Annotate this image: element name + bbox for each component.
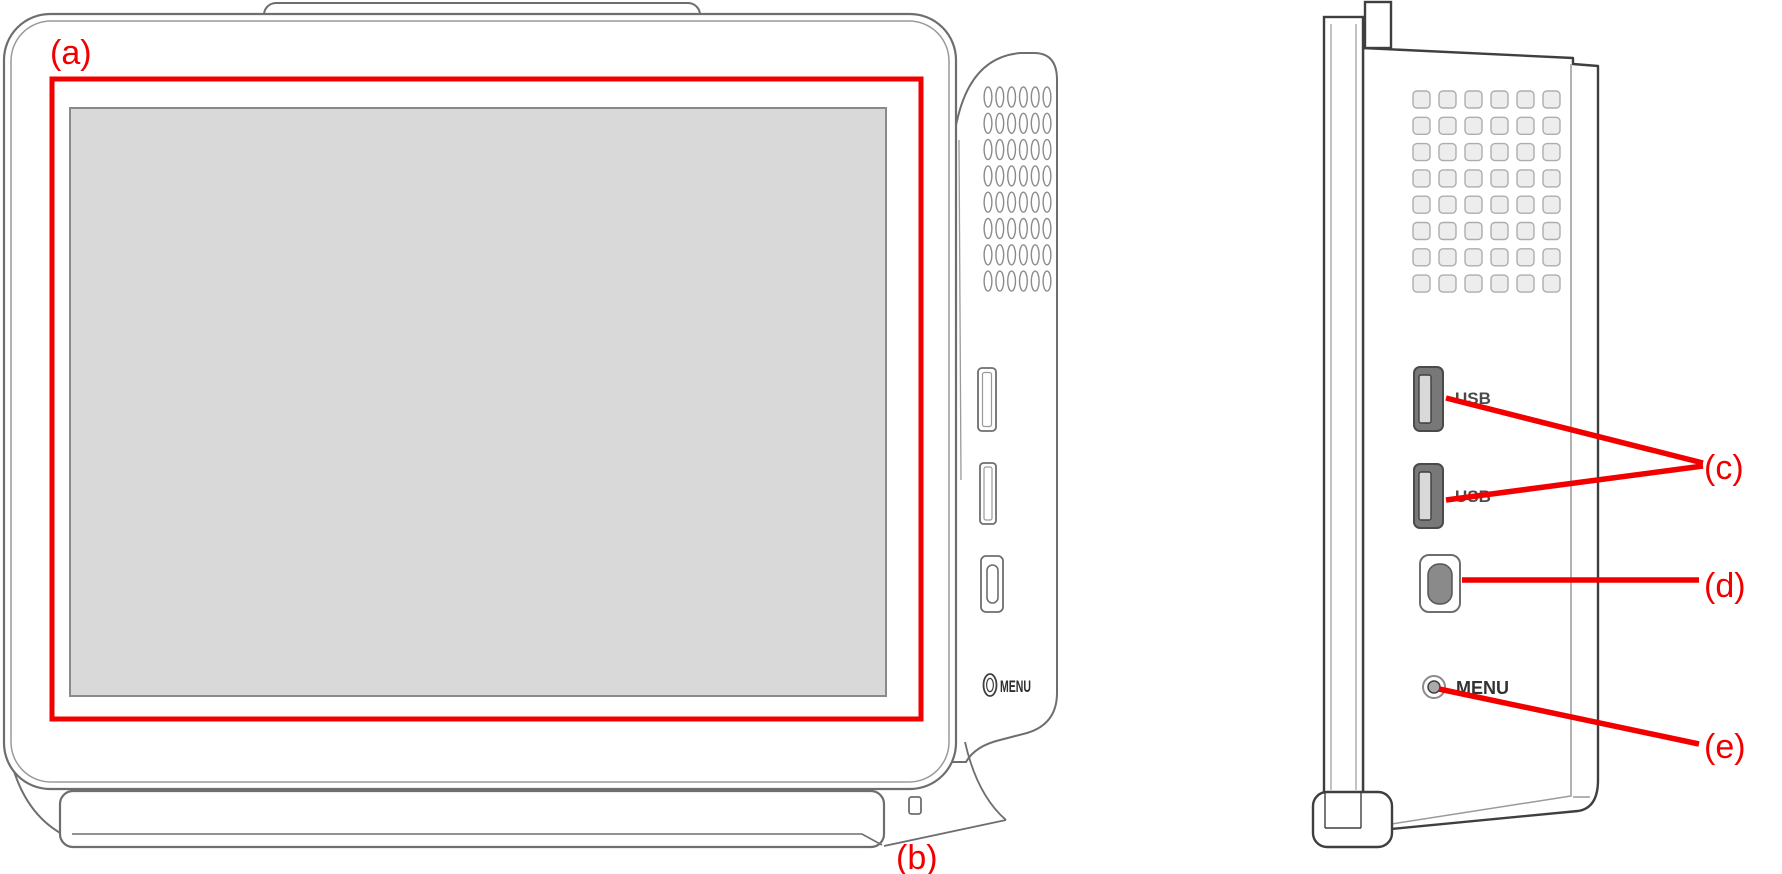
side-mini-port [1420,555,1460,612]
front-menu-button [984,674,997,696]
vent-hole [1043,113,1051,133]
vent-hole [1031,140,1039,160]
vent-hole [984,271,992,291]
vent-hole [1543,275,1560,292]
vent-hole [1020,166,1028,186]
vent-hole [1043,271,1051,291]
vent-hole [1439,275,1456,292]
vent-hole [1465,117,1482,134]
vent-hole [1491,275,1508,292]
front-side-panel [950,53,1057,762]
side-usb-port-top [1414,367,1443,431]
vent-hole [984,87,992,107]
vent-hole [1491,117,1508,134]
vent-hole [1031,166,1039,186]
vent-hole [1031,245,1039,265]
vent-hole [1439,223,1456,240]
vent-hole [1043,192,1051,212]
vent-hole [1517,275,1534,292]
vent-hole [996,245,1004,265]
vent-hole [1413,170,1430,187]
vent-hole [1020,192,1028,212]
vent-hole [996,219,1004,239]
front-menu-button-label: MENU [1000,676,1031,695]
vent-hole [1491,144,1508,161]
vent-hole [1413,223,1430,240]
side-usb-port-bottom [1414,464,1443,528]
vent-hole [1543,144,1560,161]
vent-hole [996,271,1004,291]
vent-hole [1439,91,1456,108]
vent-hole [1020,271,1028,291]
vent-hole [1008,192,1016,212]
front-edge-usb-slot-bottom [980,463,996,524]
vent-hole [1031,219,1039,239]
indicator-window [909,797,921,814]
vent-hole [1543,117,1560,134]
vent-hole [1465,196,1482,213]
vent-hole [1491,91,1508,108]
vent-hole [984,140,992,160]
front-bottom-bar [60,791,884,847]
vent-hole [1465,249,1482,266]
side-bottom-foot [1313,792,1392,847]
vent-hole [1491,170,1508,187]
vent-hole [1517,91,1534,108]
vent-hole [1043,87,1051,107]
vent-hole [1439,249,1456,266]
callout-e-label: (e) [1704,728,1746,766]
vent-hole [1031,192,1039,212]
vent-hole [1413,275,1430,292]
callout-a-label: (a) [50,34,92,72]
vent-hole [996,87,1004,107]
device-diagram: MENU [0,0,1782,874]
vent-hole [1020,113,1028,133]
vent-hole [984,113,992,133]
vent-hole [1491,249,1508,266]
vent-hole [1543,249,1560,266]
vent-hole [1439,117,1456,134]
callout-d-label: (d) [1704,567,1746,605]
vent-hole [1491,196,1508,213]
vent-hole [1008,271,1016,291]
vent-hole [1008,166,1016,186]
vent-hole [1517,117,1534,134]
vent-hole [1043,166,1051,186]
vent-hole [984,219,992,239]
vent-hole [1543,170,1560,187]
vent-hole [1008,113,1016,133]
vent-hole [996,140,1004,160]
vent-hole [1413,196,1430,213]
vent-hole [1517,249,1534,266]
vent-hole [1439,144,1456,161]
vent-hole [984,245,992,265]
front-menu-label-group: MENU [1000,676,1031,695]
side-top-tab [1365,2,1391,48]
vent-hole [984,166,992,186]
vent-hole [1413,144,1430,161]
vent-hole [1543,91,1560,108]
vent-hole [1439,170,1456,187]
vent-hole [1517,196,1534,213]
vent-hole [1465,275,1482,292]
vent-hole [984,192,992,212]
vent-hole [1008,140,1016,160]
vent-hole [1543,196,1560,213]
vent-hole [1413,249,1430,266]
vent-hole [1031,271,1039,291]
vent-hole [1043,219,1051,239]
vent-hole [1008,87,1016,107]
vent-hole [1491,223,1508,240]
vent-hole [1543,223,1560,240]
vent-hole [1020,87,1028,107]
vent-hole [1020,140,1028,160]
vent-hole [1465,170,1482,187]
vent-hole [1008,219,1016,239]
vent-hole [1008,245,1016,265]
vent-hole [1031,113,1039,133]
vent-hole [1439,196,1456,213]
vent-hole [1043,140,1051,160]
vent-hole [996,113,1004,133]
vent-hole [1020,245,1028,265]
front-edge-usb-slot-top [978,368,996,431]
vent-hole [1517,144,1534,161]
vent-hole [1413,91,1430,108]
callout-c-label: (c) [1704,449,1744,487]
vent-hole [1043,245,1051,265]
vent-hole [1020,219,1028,239]
vent-hole [996,192,1004,212]
diagram-canvas: MENU [0,0,1782,874]
vent-hole [1465,223,1482,240]
side-front-bezel-strip [1324,17,1363,829]
vent-hole [1465,144,1482,161]
vent-hole [1517,223,1534,240]
vent-hole [1517,170,1534,187]
vent-hole [1031,87,1039,107]
vent-hole [1413,117,1430,134]
front-edge-mini-port [981,556,1003,612]
callout-b-label: (b) [896,839,938,874]
vent-hole [1465,91,1482,108]
vent-hole [996,166,1004,186]
display-screen [70,108,886,696]
